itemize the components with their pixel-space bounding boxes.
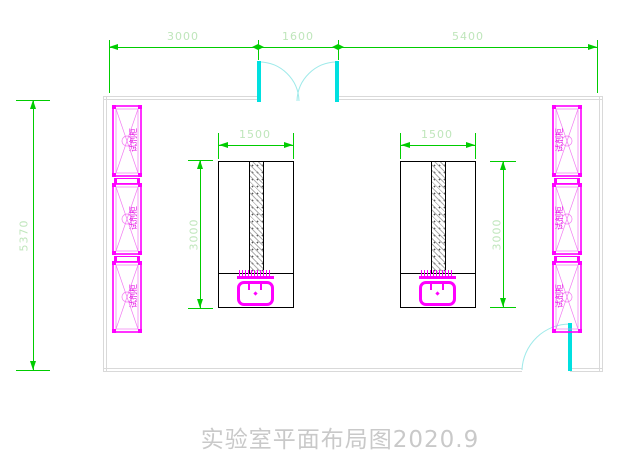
sink-bar-right <box>419 276 456 279</box>
dim-arrow <box>588 44 597 50</box>
sink-tap-left <box>260 284 262 290</box>
dim-ext <box>597 40 598 93</box>
dim-text-bench1-3000: 3000 <box>188 205 201 265</box>
cabinet-left-2: 试剂柜 <box>112 183 142 255</box>
floor-plan-canvas: 试剂柜 试剂柜 试剂柜 <box>0 0 619 469</box>
dim-text-1600: 1600 <box>265 30 331 43</box>
dim-text-bench1-1500: 1500 <box>222 128 288 141</box>
dim-arrow <box>466 142 475 148</box>
dim-ext <box>293 133 294 159</box>
dim-arrow <box>109 44 118 50</box>
cabinet-left-1: 试剂柜 <box>112 105 142 177</box>
sink-tap-right <box>442 284 444 290</box>
door-swing-arcs <box>0 0 619 469</box>
dim-arrow <box>30 361 36 370</box>
dim-text-3000: 3000 <box>150 30 216 43</box>
dim-line-left <box>33 100 34 370</box>
dim-line-bench2-width <box>400 145 476 146</box>
cabinet-right-2: 试剂柜 <box>552 183 582 255</box>
dim-ext <box>258 40 259 60</box>
cabinet-label: 试剂柜 <box>555 266 565 326</box>
dim-text-5400: 5400 <box>435 30 501 43</box>
sink-bar-left <box>237 276 274 279</box>
dim-text-bench2-3000: 3000 <box>491 205 504 265</box>
dim-line-top <box>109 47 598 48</box>
dim-arrow <box>197 160 203 169</box>
dim-tick <box>490 307 516 308</box>
dim-arrow <box>500 298 506 307</box>
cabinet-right-1: 试剂柜 <box>552 105 582 177</box>
dim-ext <box>338 40 339 60</box>
dim-tick <box>16 370 50 371</box>
dim-arrow <box>500 161 506 170</box>
dim-text-bench2-1500: 1500 <box>404 128 470 141</box>
drawing-title: 实验室平面布局图2020.9 <box>140 420 540 454</box>
sink-tap-right <box>430 284 432 290</box>
dim-arrow <box>197 299 203 308</box>
cabinet-right-3: 试剂柜 <box>552 261 582 333</box>
top-door-left-leaf <box>257 61 261 102</box>
dim-arrow <box>401 142 410 148</box>
dim-arrow <box>219 142 228 148</box>
cabinet-label: 试剂柜 <box>555 110 565 170</box>
bench-right-reagent-strip <box>431 162 446 273</box>
sink-tap-left <box>248 284 250 290</box>
dim-ext <box>475 133 476 159</box>
cabinet-label: 试剂柜 <box>555 188 565 248</box>
cabinet-label: 试剂柜 <box>129 110 139 170</box>
dim-arrow <box>284 142 293 148</box>
cabinet-label: 试剂柜 <box>129 188 139 248</box>
bench-left-reagent-strip <box>249 162 264 273</box>
cabinet-label: 试剂柜 <box>129 266 139 326</box>
cabinet-left-3: 试剂柜 <box>112 261 142 333</box>
dim-text-5370: 5370 <box>18 206 31 266</box>
top-door-right-leaf <box>335 61 339 102</box>
dim-line-bench1-width <box>218 145 294 146</box>
dim-tick <box>188 308 213 309</box>
dim-arrow <box>30 100 36 109</box>
